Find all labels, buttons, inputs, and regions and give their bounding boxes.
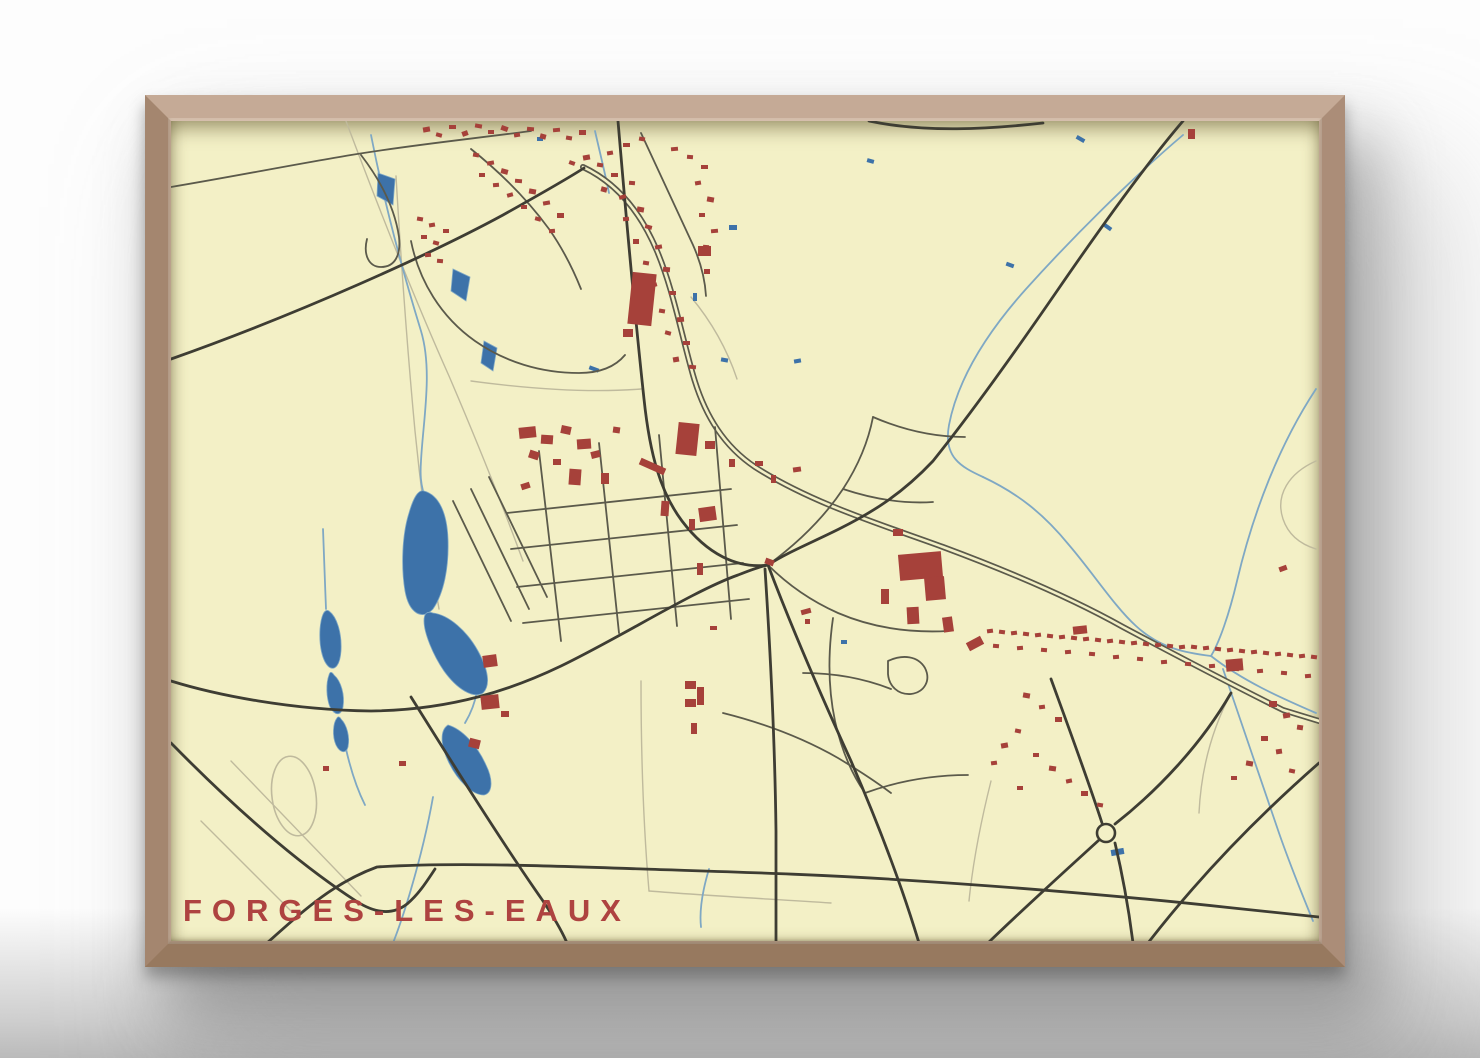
building	[473, 153, 480, 158]
pond	[1006, 262, 1015, 268]
building	[449, 125, 456, 129]
building	[1017, 786, 1023, 790]
building	[568, 469, 581, 486]
building	[1191, 645, 1197, 650]
building	[529, 188, 537, 194]
lake	[403, 491, 448, 615]
building	[665, 330, 672, 335]
building	[755, 461, 763, 466]
building	[433, 240, 440, 245]
building	[1305, 674, 1311, 679]
building	[1215, 647, 1221, 652]
stream	[948, 135, 1183, 477]
building	[1041, 648, 1047, 653]
building	[1073, 625, 1088, 634]
building	[1188, 129, 1195, 139]
building	[623, 329, 633, 337]
lake	[320, 610, 341, 668]
street	[471, 149, 581, 289]
building	[436, 132, 443, 137]
building	[323, 766, 329, 771]
building	[600, 186, 607, 192]
building	[729, 459, 735, 467]
stream	[700, 869, 709, 927]
building	[942, 616, 954, 632]
stream	[983, 477, 1211, 656]
building	[515, 179, 522, 184]
building	[689, 519, 695, 530]
building	[590, 450, 600, 459]
building	[669, 291, 676, 295]
building	[507, 192, 514, 197]
building	[1001, 742, 1009, 748]
building	[425, 253, 431, 258]
building	[1049, 766, 1057, 772]
street	[768, 417, 873, 565]
building	[1143, 642, 1149, 647]
building	[1276, 749, 1283, 755]
main-road	[869, 121, 1043, 129]
building	[801, 608, 812, 615]
building	[487, 160, 495, 165]
field-path	[649, 891, 831, 903]
lake	[451, 269, 470, 301]
building	[1209, 664, 1215, 669]
street	[715, 427, 731, 619]
building	[1155, 643, 1161, 648]
building	[881, 589, 889, 604]
main-road	[765, 569, 776, 941]
field-path	[1281, 461, 1316, 549]
building	[611, 173, 618, 177]
building	[1081, 791, 1088, 796]
field-path	[471, 381, 641, 391]
building	[527, 127, 534, 132]
building	[1203, 646, 1209, 651]
building	[475, 123, 483, 128]
building	[613, 427, 621, 434]
building	[566, 136, 573, 141]
building	[543, 200, 551, 205]
building	[663, 267, 670, 273]
building	[673, 357, 680, 363]
building	[771, 475, 776, 483]
stream	[465, 691, 477, 723]
street	[517, 563, 743, 587]
building	[691, 723, 697, 734]
building	[577, 439, 592, 450]
building	[553, 459, 561, 465]
field-path	[231, 761, 361, 896]
building	[698, 246, 711, 256]
building	[579, 130, 586, 135]
lake	[424, 612, 488, 694]
building	[999, 630, 1005, 635]
building	[991, 761, 997, 766]
building	[697, 687, 704, 705]
building	[1226, 658, 1244, 671]
building	[607, 151, 614, 156]
street	[888, 657, 927, 694]
field-path	[691, 297, 737, 379]
lake	[377, 173, 395, 205]
main-road	[171, 743, 435, 912]
street	[411, 241, 625, 373]
building	[907, 607, 920, 625]
building	[1239, 649, 1245, 654]
building	[1089, 652, 1095, 657]
poster-paper: FORGES-LES-EAUX	[171, 121, 1319, 941]
pond	[867, 158, 875, 164]
roundabout	[1097, 824, 1115, 842]
building	[518, 426, 536, 439]
building	[1066, 778, 1073, 783]
building	[1035, 633, 1041, 638]
stream	[323, 529, 326, 609]
building	[993, 644, 999, 649]
building	[898, 551, 943, 581]
street	[507, 489, 731, 513]
building	[557, 213, 564, 218]
building	[683, 341, 690, 345]
building	[520, 482, 530, 490]
street	[489, 477, 547, 597]
pond	[794, 358, 802, 363]
building	[1071, 636, 1077, 641]
building	[1107, 639, 1113, 644]
stream	[346, 749, 365, 805]
building	[697, 563, 703, 575]
building	[639, 137, 646, 142]
building	[1023, 692, 1031, 698]
street	[453, 501, 511, 621]
building	[711, 229, 718, 234]
main-road	[1115, 843, 1133, 941]
building	[500, 168, 508, 175]
building	[643, 261, 650, 266]
building	[1055, 717, 1062, 722]
building	[421, 235, 427, 239]
building	[677, 317, 684, 323]
building	[623, 143, 630, 147]
building	[443, 229, 449, 233]
building	[701, 165, 708, 169]
street	[873, 417, 965, 437]
building	[633, 239, 639, 244]
building	[1263, 651, 1269, 656]
building	[705, 441, 715, 449]
building	[1287, 653, 1293, 658]
building	[429, 223, 436, 228]
wall: { "poster": { "title": "FORGES-LES-EAUX"…	[0, 0, 1480, 1058]
pond	[841, 640, 847, 644]
building	[685, 681, 696, 689]
street	[471, 489, 529, 609]
building	[660, 501, 669, 517]
pond	[721, 357, 729, 362]
pond	[693, 293, 697, 301]
building	[417, 217, 424, 222]
building	[501, 711, 509, 717]
building	[987, 629, 993, 634]
building	[1161, 660, 1167, 665]
building	[1083, 637, 1089, 642]
building	[1261, 736, 1268, 741]
building	[1289, 768, 1296, 773]
building	[675, 422, 699, 456]
street	[723, 713, 891, 793]
building	[1131, 641, 1137, 646]
street	[659, 435, 677, 626]
field-path	[969, 781, 991, 901]
building	[493, 183, 499, 188]
lake	[333, 717, 348, 752]
building	[687, 155, 693, 160]
main-road	[1051, 679, 1102, 823]
building	[560, 425, 571, 435]
street	[641, 133, 706, 296]
building	[710, 626, 717, 630]
building	[698, 506, 717, 522]
field-path	[641, 681, 649, 891]
pond	[729, 225, 737, 230]
building	[553, 128, 560, 133]
building	[1065, 650, 1071, 655]
building	[1299, 654, 1305, 659]
field-path	[346, 121, 523, 561]
building	[689, 365, 696, 370]
building	[1011, 631, 1017, 636]
poster-title: FORGES-LES-EAUX	[183, 893, 631, 929]
building	[1275, 652, 1281, 657]
building	[1119, 640, 1125, 645]
stream	[1223, 669, 1313, 921]
building	[399, 761, 406, 766]
map-svg	[171, 121, 1319, 941]
building	[1047, 634, 1053, 639]
building	[437, 259, 443, 264]
street	[171, 131, 531, 187]
building	[685, 699, 696, 707]
building	[1039, 705, 1045, 710]
building	[1033, 753, 1039, 757]
main-road	[1115, 693, 1231, 824]
building	[1017, 646, 1023, 651]
building	[1059, 635, 1065, 640]
building	[966, 636, 984, 651]
building	[1297, 725, 1304, 731]
building	[488, 130, 494, 134]
building	[482, 654, 498, 668]
building	[1231, 776, 1237, 780]
building	[1015, 728, 1022, 733]
building	[623, 217, 629, 222]
poster-frame: FORGES-LES-EAUX	[145, 95, 1345, 967]
building	[695, 181, 702, 186]
building	[1257, 669, 1263, 674]
building	[1137, 657, 1143, 662]
main-road	[988, 840, 1099, 941]
building	[1185, 662, 1191, 667]
building	[704, 269, 710, 274]
building	[793, 466, 802, 472]
building	[805, 619, 810, 624]
building	[1278, 565, 1287, 572]
building	[707, 196, 715, 202]
building	[583, 154, 591, 160]
building	[1179, 645, 1185, 650]
building	[461, 130, 468, 137]
building	[1311, 655, 1317, 660]
field-path	[1199, 693, 1231, 813]
building	[500, 125, 508, 132]
building	[1281, 671, 1287, 676]
building	[568, 160, 575, 166]
building	[1251, 650, 1257, 655]
building	[1246, 760, 1254, 766]
building	[1113, 655, 1119, 660]
street	[865, 775, 968, 793]
building	[1167, 644, 1173, 649]
building	[1095, 638, 1101, 643]
building	[479, 173, 485, 177]
building	[699, 213, 705, 217]
lake	[327, 672, 344, 713]
building	[659, 309, 666, 314]
building	[480, 694, 499, 710]
main-road	[768, 121, 1183, 565]
building	[423, 126, 431, 132]
building	[549, 229, 555, 234]
building	[1269, 701, 1277, 707]
building	[521, 205, 527, 209]
building	[671, 147, 678, 152]
building	[924, 576, 946, 601]
street	[829, 618, 865, 793]
stream	[1211, 389, 1316, 656]
building	[1023, 632, 1029, 637]
building	[893, 529, 903, 536]
building	[541, 435, 554, 445]
building	[1227, 648, 1233, 653]
pond	[1076, 135, 1086, 143]
building	[629, 181, 635, 186]
building	[601, 473, 609, 484]
